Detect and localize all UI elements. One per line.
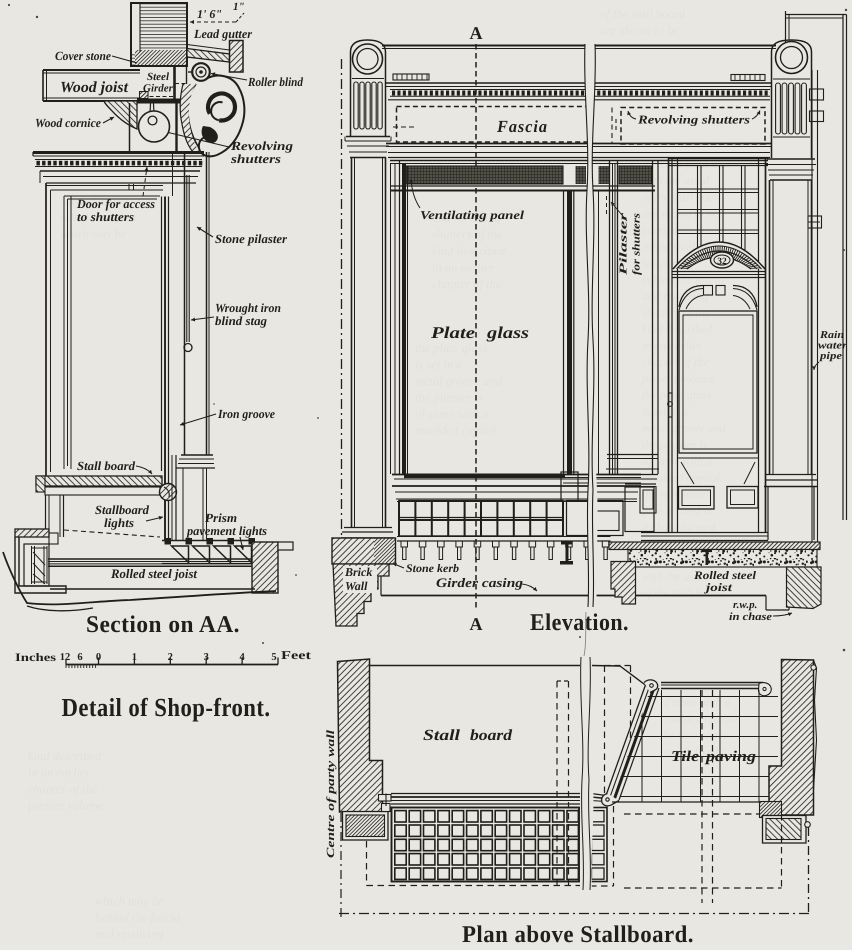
svg-text:pavement lights: pavement lights [186, 524, 267, 538]
svg-text:lights: lights [104, 516, 134, 530]
svg-text:is set in a: is set in a [415, 358, 463, 372]
svg-text:Feet: Feet [281, 648, 311, 662]
svg-text:for shutters: for shutters [632, 213, 643, 275]
svg-text:Inches: Inches [15, 652, 57, 664]
svg-text:Revolving shutters: Revolving shutters [637, 113, 751, 127]
svg-text:metal groove and: metal groove and [642, 421, 727, 435]
svg-text:Wrought iron: Wrought iron [215, 301, 281, 315]
svg-text:Tile: Tile [671, 749, 699, 765]
svg-text:Centre of party wall: Centre of party wall [325, 729, 337, 858]
svg-text:Wall: Wall [345, 579, 368, 593]
svg-text:shutters of the: shutters of the [432, 228, 503, 242]
svg-text:4: 4 [239, 652, 245, 663]
svg-text:paving: paving [704, 749, 757, 765]
svg-text:Stone pilaster: Stone pilaster [215, 232, 287, 246]
svg-text:1": 1" [233, 1, 245, 13]
svg-text:which may be: which may be [95, 894, 164, 908]
svg-text:Wood cornice: Wood cornice [35, 116, 101, 130]
svg-text:Iron groove: Iron groove [217, 407, 275, 421]
svg-text:Girder: Girder [143, 83, 174, 95]
svg-text:moulded capital: moulded capital [415, 424, 496, 438]
svg-text:Stall board: Stall board [77, 459, 136, 473]
svg-text:Cover stone: Cover stone [55, 49, 111, 63]
svg-text:Plan above Stallboard.: Plan above Stallboard. [462, 922, 694, 948]
svg-text:to shutters: to shutters [77, 210, 134, 224]
svg-text:Lead gutter: Lead gutter [193, 27, 252, 41]
svg-text:present volume: present volume [27, 799, 104, 813]
svg-text:and revolving: and revolving [95, 927, 164, 941]
svg-text:pipe: pipe [819, 351, 843, 362]
svg-text:1: 1 [132, 652, 137, 663]
svg-text:Roller blind: Roller blind [247, 75, 304, 89]
svg-text:Detail of Shop-front.: Detail of Shop-front. [62, 693, 271, 722]
svg-text:Stone kerb: Stone kerb [406, 563, 459, 575]
svg-text:Stallboard: Stallboard [95, 503, 150, 517]
svg-text:shutters: shutters [230, 152, 281, 166]
svg-text:Steel: Steel [147, 71, 170, 83]
svg-text:Ventilating panel: Ventilating panel [420, 208, 525, 222]
svg-text:is set in a: is set in a [642, 405, 688, 419]
svg-text:the rain water: the rain water [660, 728, 728, 742]
svg-text:chapter of the: chapter of the [432, 277, 502, 291]
svg-text:r.w.p.: r.w.p. [733, 599, 757, 611]
svg-text:Elevation.: Elevation. [530, 610, 629, 636]
svg-text:of the stall board: of the stall board [600, 7, 686, 21]
svg-text:Girder casing: Girder casing [436, 575, 524, 590]
svg-text:Prism: Prism [205, 511, 237, 525]
svg-text:Pilaster: Pilaster [619, 211, 630, 275]
svg-text:A: A [470, 614, 483, 634]
svg-text:moulded capital: moulded capital [660, 712, 738, 726]
svg-text:blind stag: blind stag [215, 314, 267, 328]
svg-text:of stone with a: of stone with a [415, 407, 488, 421]
svg-text:Rolled steel joist: Rolled steel joist [110, 566, 197, 581]
svg-text:Revolving: Revolving [230, 139, 293, 153]
svg-text:are shown to be: are shown to be [600, 24, 679, 38]
svg-text:glass: glass [486, 323, 529, 342]
svg-text:joist: joist [703, 582, 733, 594]
svg-text:Rolled steel: Rolled steel [693, 570, 757, 582]
svg-text:the pilaster is: the pilaster is [415, 391, 483, 405]
svg-text:3: 3 [204, 652, 209, 663]
svg-text:in an earlier: in an earlier [28, 766, 91, 780]
svg-text:Fascia: Fascia [496, 117, 548, 136]
svg-text:Wood joist: Wood joist [60, 79, 129, 96]
svg-text:kind described: kind described [28, 749, 102, 763]
svg-text:Rain: Rain [819, 330, 844, 341]
svg-text:Plate: Plate [430, 323, 475, 342]
svg-text:2: 2 [168, 652, 173, 663]
svg-text:in chase: in chase [729, 611, 772, 623]
svg-text:6: 6 [77, 652, 82, 663]
svg-text:32: 32 [717, 257, 727, 267]
svg-text:Section on AA.: Section on AA. [86, 612, 240, 638]
svg-text:A: A [470, 23, 483, 43]
svg-text:behind the fascia: behind the fascia [95, 911, 180, 925]
svg-text:0: 0 [96, 652, 101, 663]
svg-text:board: board [470, 727, 512, 744]
svg-text:metal groove and: metal groove and [415, 374, 503, 388]
svg-text:moulded capital: moulded capital [642, 471, 720, 485]
svg-text:5: 5 [271, 652, 276, 663]
svg-text:in an earlier: in an earlier [432, 261, 495, 275]
svg-text:the rain water: the rain water [642, 487, 710, 501]
svg-text:which may be: which may be [60, 227, 127, 241]
svg-text:kind described: kind described [432, 244, 506, 258]
svg-text:12: 12 [60, 652, 71, 663]
svg-text:chapter of the: chapter of the [28, 782, 98, 796]
svg-text:1' 6": 1' 6" [197, 7, 222, 21]
svg-text:Brick: Brick [344, 565, 372, 579]
svg-text:Stall: Stall [423, 727, 461, 744]
